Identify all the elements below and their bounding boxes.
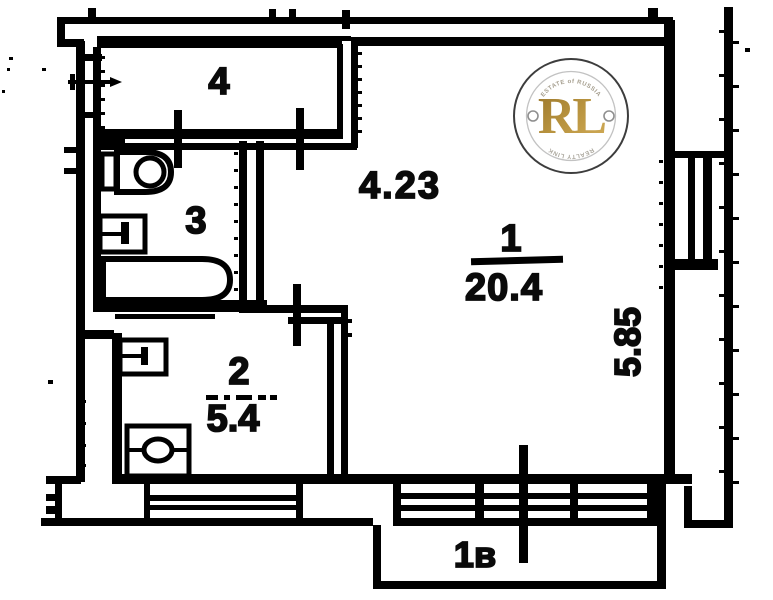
svg-text:5.85: 5.85 (607, 307, 648, 377)
svg-text:RL: RL (538, 88, 606, 145)
svg-text:4: 4 (208, 61, 229, 103)
svg-text:4.23: 4.23 (359, 165, 441, 207)
svg-text:5.4: 5.4 (207, 398, 260, 440)
svg-text:1в: 1в (454, 534, 496, 575)
svg-text:20.4: 20.4 (465, 267, 543, 309)
svg-text:1: 1 (500, 218, 521, 260)
svg-text:3: 3 (185, 200, 206, 242)
svg-text:2: 2 (228, 351, 249, 393)
